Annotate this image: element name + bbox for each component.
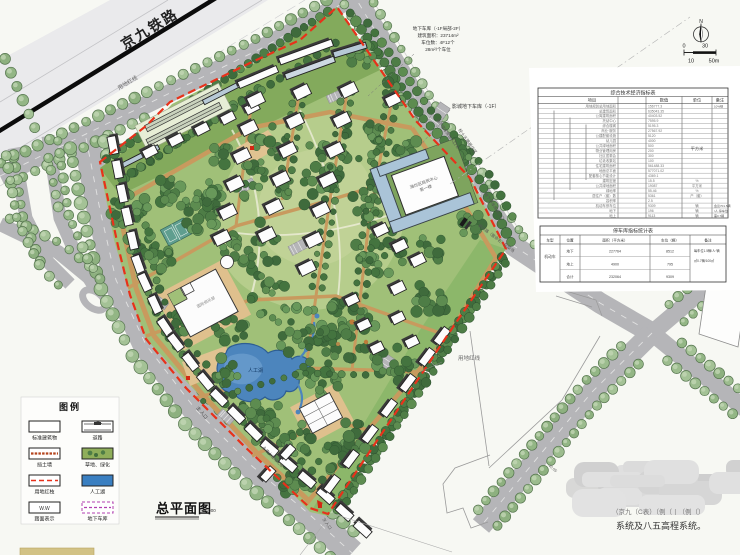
svg-text:19087: 19087 (648, 184, 658, 188)
svg-text:标准建筑物: 标准建筑物 (32, 435, 57, 442)
svg-text:户（套）: 户（套） (690, 193, 704, 198)
svg-text:200: 200 (648, 149, 654, 153)
svg-text:配套核心节能设计: 配套核心节能设计 (589, 173, 617, 178)
svg-text:总建筑面积: 总建筑面积 (599, 108, 617, 113)
svg-text:综合楼阁: 综合楼阁 (602, 123, 616, 128)
svg-text:停车库指标统计表: 停车库指标统计表 (613, 228, 653, 235)
svg-text:561488.33: 561488.33 (648, 164, 664, 168)
svg-text:物业管理用房: 物业管理用房 (596, 148, 617, 153)
svg-text:住宅建筑面积: 住宅建筑面积 (596, 163, 617, 168)
svg-text:建筑密度: 建筑密度 (602, 178, 616, 183)
svg-text:备注: 备注 (716, 97, 725, 104)
svg-text:平方米: 平方米 (692, 183, 703, 188)
svg-text:地下车库（-1F局部-2F）: 地下车库（-1F局部-2F） (413, 25, 464, 32)
svg-text:综合技术经济指标表: 综合技术经济指标表 (610, 90, 655, 97)
svg-text:社区居委会: 社区居委会 (599, 153, 617, 158)
svg-text:100: 100 (648, 159, 654, 163)
svg-text:156777.3: 156777.3 (648, 104, 662, 108)
svg-text:500: 500 (648, 144, 654, 148)
svg-text:建筑面积：23714m²: 建筑面积：23714m² (417, 32, 459, 39)
svg-text:踏面表示: 踏面表示 (34, 516, 54, 523)
svg-text:4369.1: 4369.1 (648, 174, 658, 178)
svg-text:232064: 232064 (609, 275, 621, 279)
svg-text:577071.02: 577071.02 (648, 169, 664, 173)
svg-text:%: % (695, 189, 698, 193)
svg-text:数值: 数值 (660, 97, 668, 104)
svg-text:（京九（C表）（例（丨（例（）: （京九（C表）（例（丨（例（） (612, 507, 704, 516)
svg-text:绿地率: 绿地率 (606, 188, 617, 193)
svg-text:地下: 地下 (609, 208, 616, 213)
svg-text:机动车停车位: 机动车停车位 (596, 203, 617, 208)
svg-text:4900: 4900 (611, 262, 619, 266)
svg-text:5195.3: 5195.3 (648, 124, 658, 128)
svg-text:N: N (699, 19, 703, 25)
svg-text:图例: 图例 (59, 401, 81, 412)
svg-text:10: 10 (688, 59, 694, 65)
svg-text:地上: 地上 (566, 261, 574, 266)
svg-text:4000: 4000 (648, 139, 656, 143)
svg-text:15.5: 15.5 (648, 179, 655, 183)
svg-text:公寓建筑面积: 公寓建筑面积 (596, 113, 617, 118)
svg-text:㎡0.7辆/100㎡: ㎡0.7辆/100㎡ (694, 258, 715, 263)
svg-text:/人·停车位: /人·停车位 (714, 208, 728, 213)
svg-text:公共绿地面积: 公共绿地面积 (596, 143, 617, 148)
svg-text:2.5: 2.5 (648, 199, 653, 203)
svg-text:用地红线: 用地红线 (458, 354, 481, 362)
svg-text:5361: 5361 (648, 194, 656, 198)
svg-text:公建配套设施: 公建配套设施 (596, 133, 617, 138)
svg-text:单位: 单位 (693, 97, 701, 104)
svg-text:%: % (695, 179, 698, 183)
svg-text:垃圾收集站: 垃圾收集站 (599, 158, 617, 163)
svg-text:道路: 道路 (92, 435, 102, 442)
svg-text:地下: 地下 (566, 249, 574, 254)
svg-text:9113: 9113 (648, 214, 655, 218)
svg-text:居住户（套）数: 居住户（套）数 (592, 193, 616, 198)
svg-text:227764: 227764 (609, 250, 621, 254)
svg-text:用地红枝: 用地红枝 (34, 489, 54, 496)
svg-text:托幼中心: 托幼中心 (602, 118, 616, 123)
svg-text:合计: 合计 (566, 274, 574, 279)
svg-text:8512: 8512 (666, 250, 674, 254)
svg-text:9309: 9309 (648, 204, 656, 208)
svg-text:27567.92: 27567.92 (648, 129, 662, 133)
svg-text:备注: 备注 (704, 238, 712, 243)
svg-text:地上: 地上 (609, 213, 616, 218)
svg-text:机动车: 机动车 (544, 254, 556, 259)
svg-text:人工湖: 人工湖 (90, 489, 105, 496)
svg-text:地面总平面: 地面总平面 (599, 168, 617, 173)
svg-text:平方米: 平方米 (691, 145, 704, 152)
svg-text:W.W: W.W (39, 506, 50, 512)
svg-text:0: 0 (682, 44, 685, 50)
svg-text:7595.9: 7595.9 (648, 119, 658, 123)
svg-text:1:1000: 1:1000 (202, 508, 216, 513)
svg-text:面积（平方米）: 面积（平方米） (602, 238, 627, 243)
svg-text:位置: 位置 (566, 238, 574, 243)
svg-text:55.46: 55.46 (648, 189, 657, 193)
svg-text:人工湖: 人工湖 (248, 367, 263, 374)
svg-text:10%绿: 10%绿 (714, 103, 723, 108)
svg-text:9309: 9309 (666, 275, 674, 279)
svg-text:影城地下车库（-1F）: 影城地下车库（-1F） (452, 103, 500, 110)
svg-text:635043.35: 635043.35 (648, 109, 664, 113)
svg-text:会议701.5辆: 会议701.5辆 (714, 203, 731, 208)
svg-text:40403.52: 40403.52 (648, 114, 662, 118)
svg-text:300: 300 (648, 154, 654, 158)
svg-text:车位数：4F12个: 车位数：4F12个 (421, 39, 455, 46)
svg-text:地下车库: 地下车库 (87, 516, 107, 523)
svg-text:车位（辆）: 车位（辆） (661, 238, 679, 243)
svg-text:商业·服务: 商业·服务 (601, 128, 616, 133)
svg-text:795: 795 (667, 262, 673, 266)
svg-text:系统及八五高程系统。: 系统及八五高程系统。 (616, 520, 706, 531)
svg-text:每车位1.5辆/人·辆: 每车位1.5辆/人·辆 (694, 248, 720, 253)
svg-text:50m: 50m (709, 59, 720, 65)
svg-text:公共绿地面积: 公共绿地面积 (596, 183, 617, 188)
svg-text:草地、绿化: 草地、绿化 (85, 462, 110, 469)
svg-text:幼儿园: 幼儿园 (606, 138, 617, 143)
svg-text:196: 196 (648, 209, 654, 213)
svg-text:30: 30 (702, 44, 708, 50)
svg-text:挡土墙: 挡土墙 (37, 462, 52, 469)
svg-text:5120: 5120 (648, 134, 656, 138)
svg-text:用地规划总用地面积: 用地规划总用地面积 (585, 103, 616, 108)
svg-text:需0.7辆: 需0.7辆 (714, 213, 724, 218)
svg-text:28m²/个车位: 28m²/个车位 (425, 46, 451, 53)
svg-text:容积率: 容积率 (606, 198, 617, 203)
svg-text:车型: 车型 (546, 238, 554, 243)
